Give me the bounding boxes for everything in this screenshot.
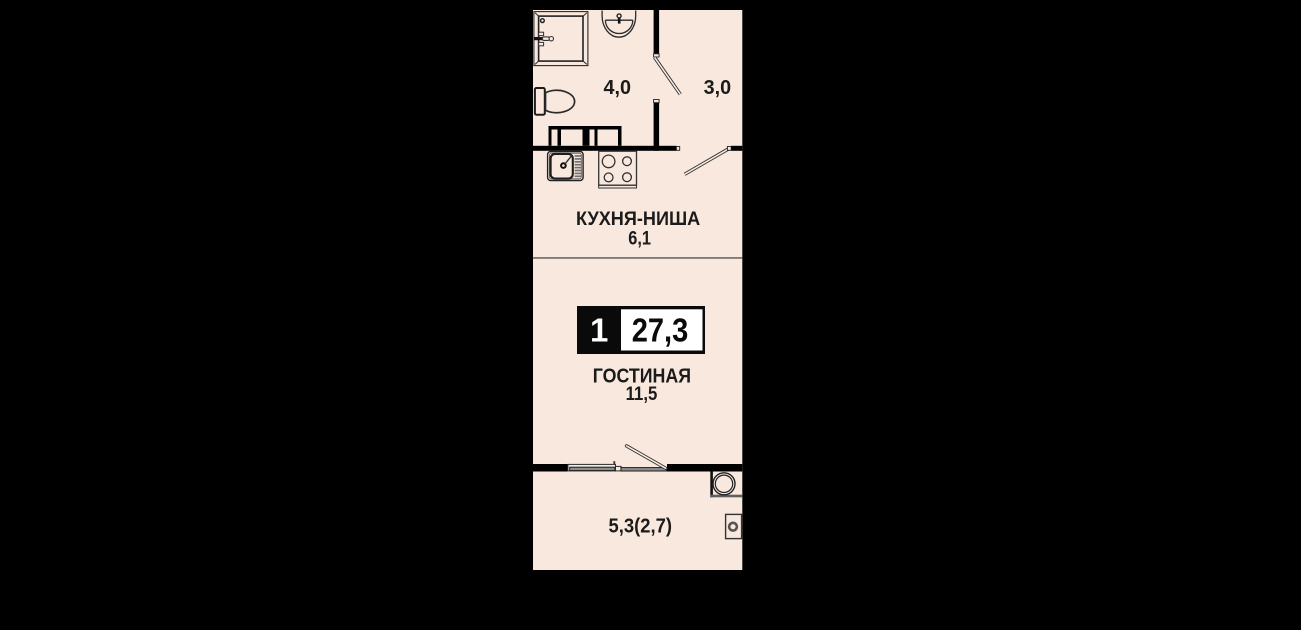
svg-text:КУХНЯ-НИША: КУХНЯ-НИША [576, 208, 700, 230]
svg-text:6,1: 6,1 [628, 228, 651, 249]
svg-text:27,3: 27,3 [632, 312, 689, 349]
svg-text:4,0: 4,0 [604, 76, 632, 99]
svg-text:5,3(2,7): 5,3(2,7) [609, 514, 673, 537]
svg-text:11,5: 11,5 [626, 384, 658, 405]
svg-text:1: 1 [590, 312, 608, 349]
svg-text:3,0: 3,0 [704, 76, 732, 99]
